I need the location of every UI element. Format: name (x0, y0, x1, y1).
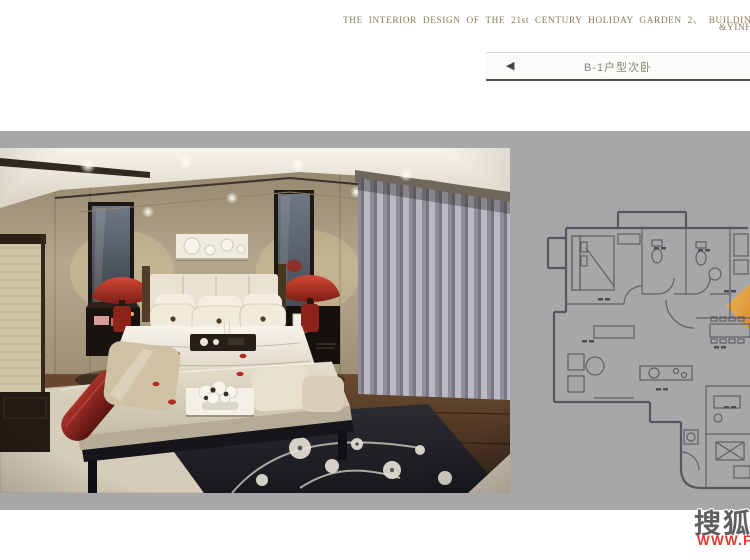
section-navbar: ◀ B-1户型次卧 (486, 52, 750, 81)
content-stage (0, 131, 750, 510)
doc-title-line1: THE INTERIOR DESIGN OF THE 21st CENTURY … (343, 12, 750, 26)
floor-plan (538, 190, 750, 505)
presentation-slide: THE INTERIOR DESIGN OF THE 21st CENTURY … (0, 0, 750, 560)
section-title: B-1户型次卧 (486, 59, 750, 75)
doc-title-line2: &YINH (719, 23, 750, 33)
watermark-url: WWW.F (697, 533, 750, 548)
bedroom-photo (0, 148, 510, 493)
